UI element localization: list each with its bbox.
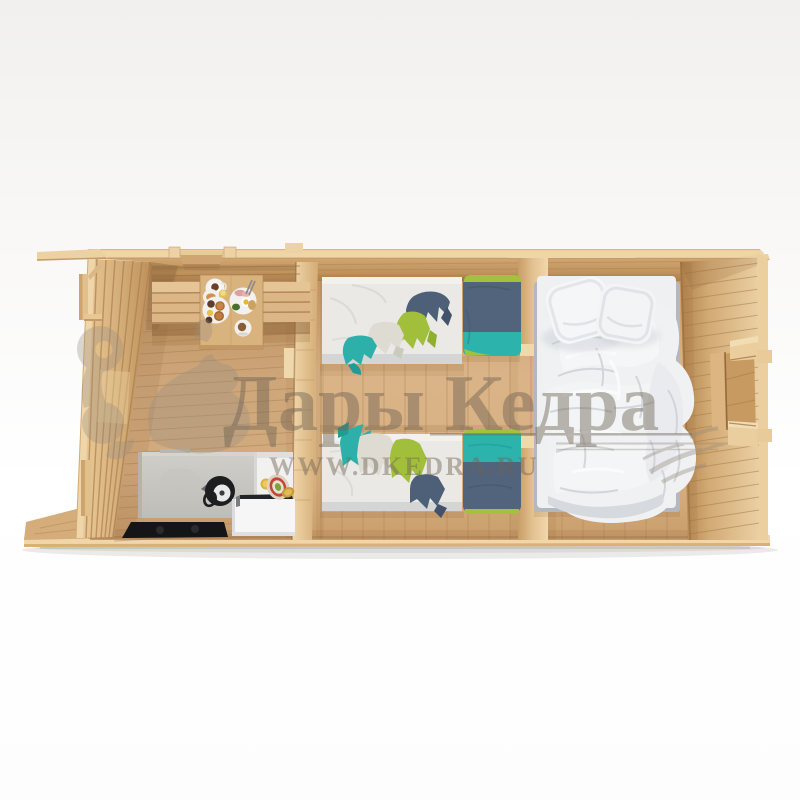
svg-text:WWW.DKEDRA.RU: WWW.DKEDRA.RU [269, 452, 539, 481]
